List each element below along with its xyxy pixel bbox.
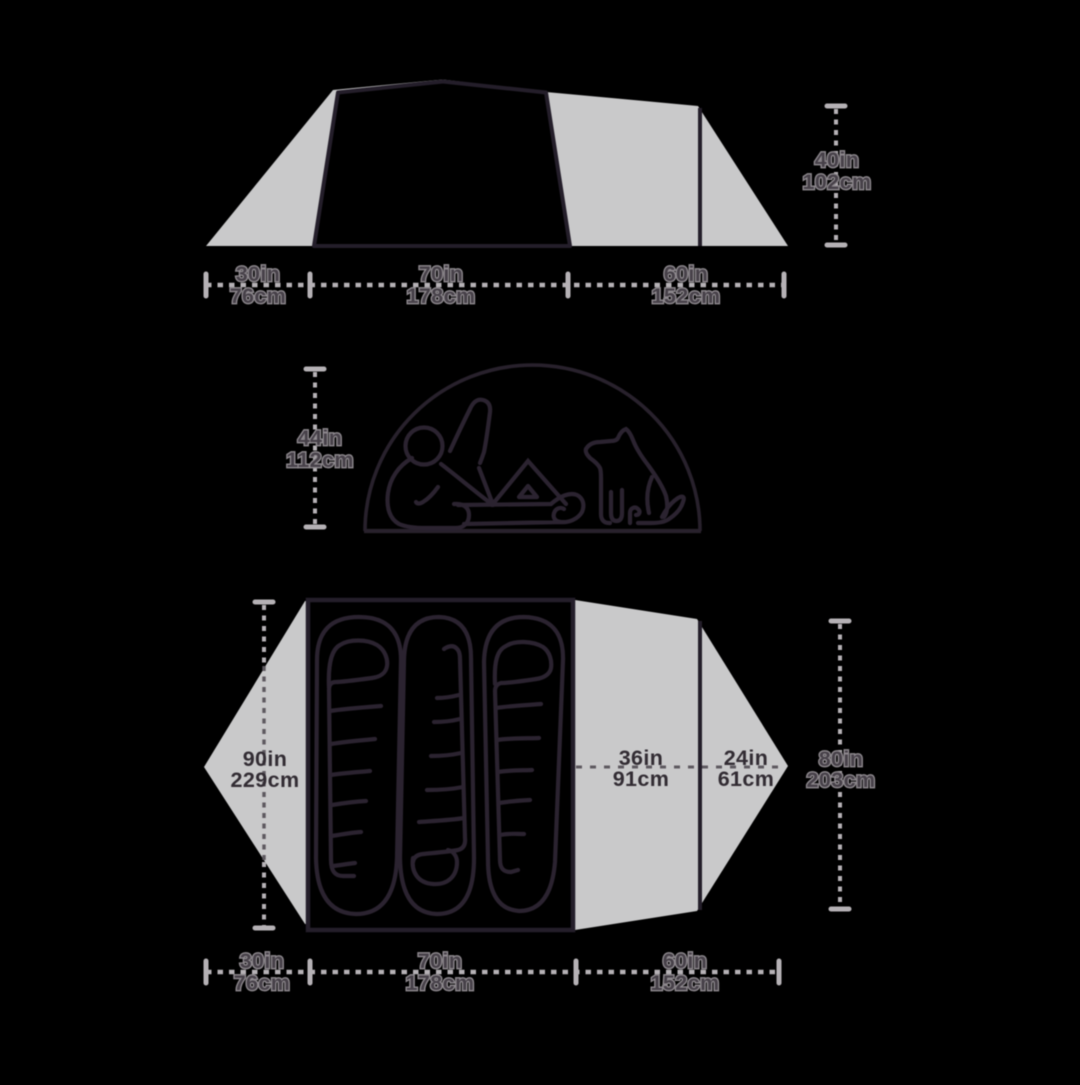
svg-text:60in: 60in: [663, 949, 708, 973]
svg-text:40in: 40in: [815, 148, 860, 172]
svg-text:70in: 70in: [418, 949, 463, 973]
svg-text:91cm: 91cm: [613, 767, 670, 791]
svg-text:178cm: 178cm: [406, 971, 475, 995]
svg-text:44in: 44in: [298, 426, 343, 450]
svg-text:102cm: 102cm: [803, 170, 872, 194]
svg-text:70in: 70in: [419, 262, 464, 286]
svg-text:203cm: 203cm: [807, 768, 876, 792]
svg-text:60in: 60in: [664, 262, 709, 286]
svg-text:30in: 30in: [240, 949, 285, 973]
svg-text:112cm: 112cm: [286, 448, 354, 472]
svg-text:61cm: 61cm: [718, 767, 775, 791]
svg-text:229cm: 229cm: [231, 768, 300, 792]
svg-text:152cm: 152cm: [651, 971, 720, 995]
svg-text:76cm: 76cm: [234, 971, 291, 995]
svg-text:152cm: 152cm: [652, 284, 721, 308]
svg-text:30in: 30in: [236, 262, 281, 286]
svg-text:178cm: 178cm: [407, 284, 476, 308]
svg-text:76cm: 76cm: [230, 284, 287, 308]
